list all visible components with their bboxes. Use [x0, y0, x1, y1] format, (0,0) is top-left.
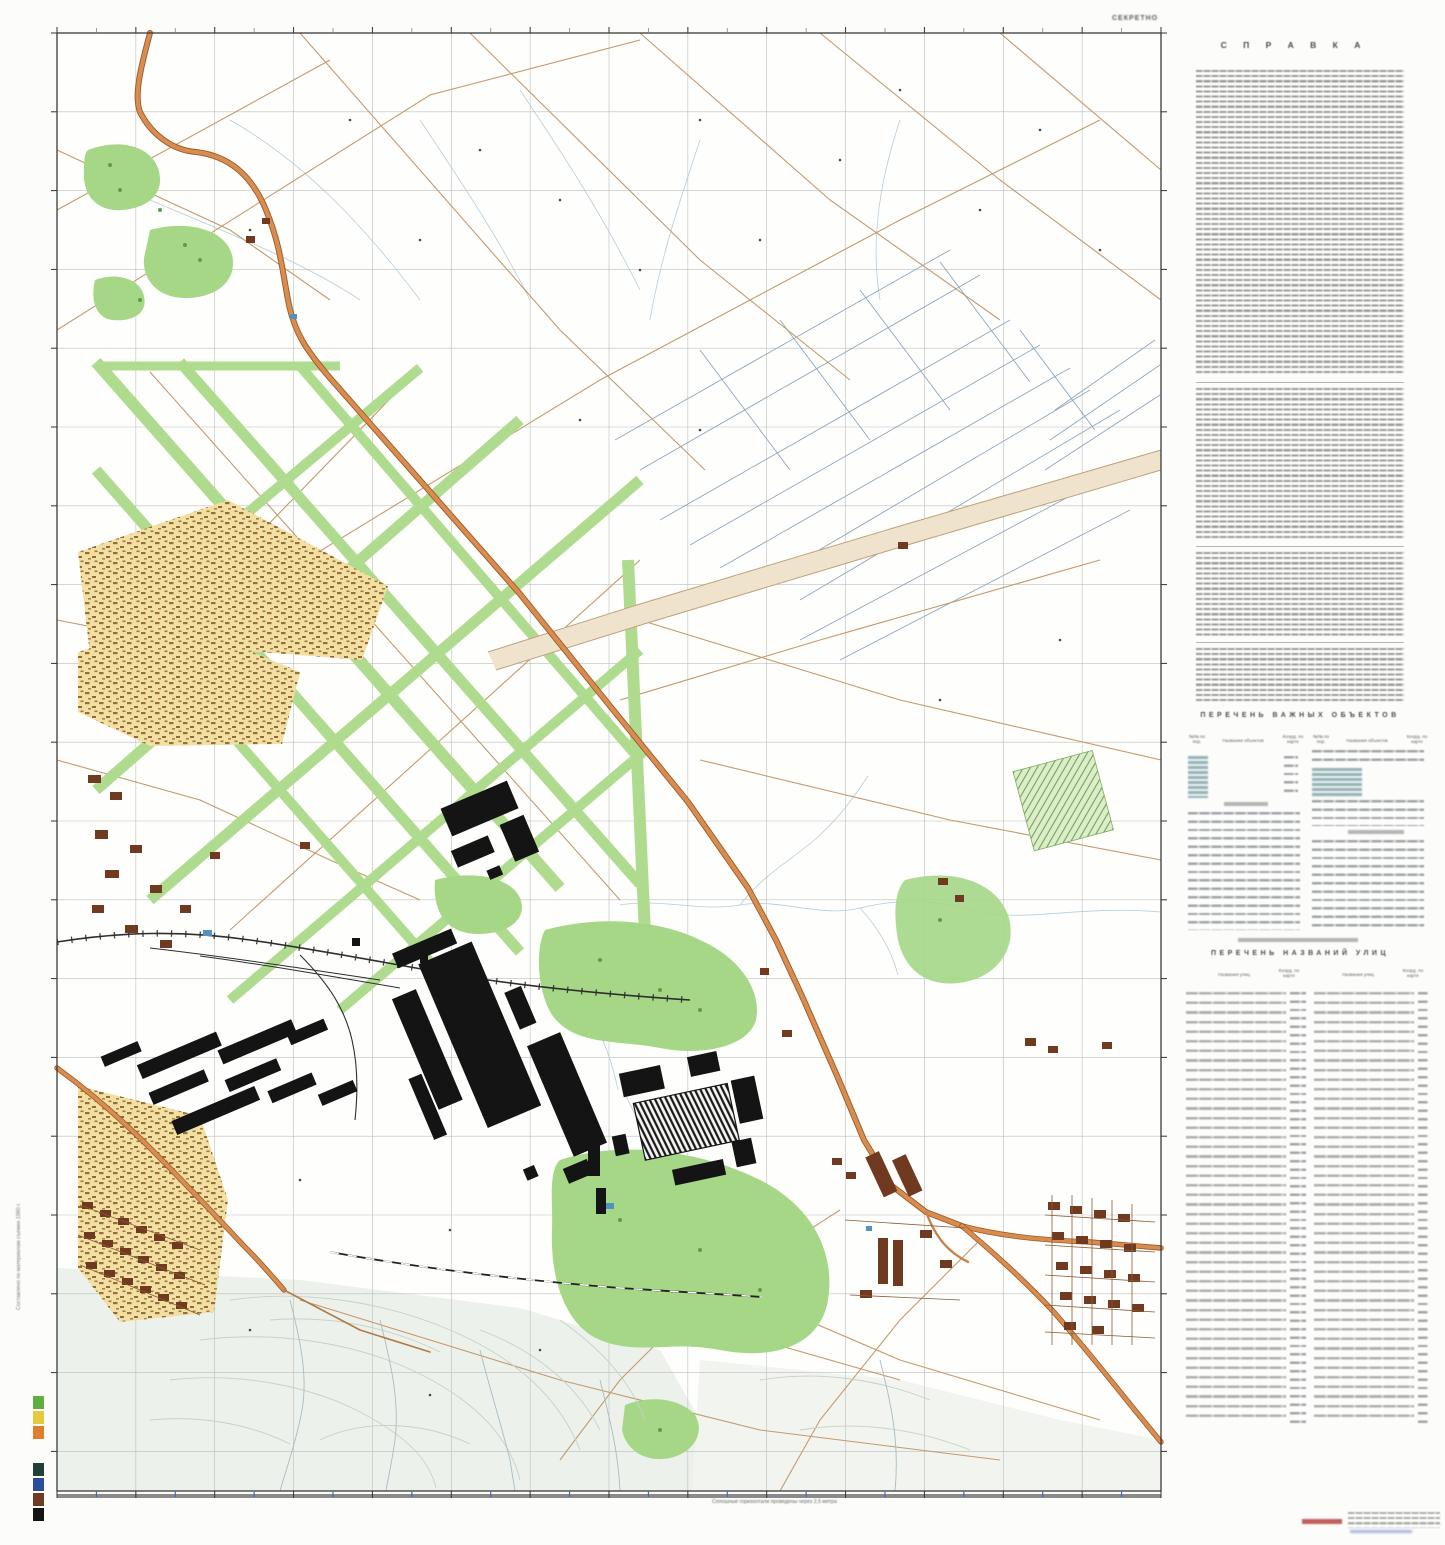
col-coord: Коорд. по карте — [1400, 968, 1426, 978]
imprint-text-block — [1348, 1512, 1440, 1528]
sidebar: С П Р А В К А ПЕРЕЧЕНЬ ВАЖНЫХ ОБЪЕКТОВ №… — [1180, 40, 1428, 50]
objects-subheading — [1348, 830, 1404, 834]
col-coord: Коорд. по карте — [1404, 734, 1430, 744]
color-swatch — [33, 1411, 44, 1424]
map-sheet-page: СЕКРЕТНО Составлено по материалам съемки… — [0, 0, 1445, 1545]
objects-rows — [1312, 800, 1424, 826]
color-swatch — [33, 1493, 44, 1506]
reference-text-block — [1196, 648, 1404, 704]
streets-rows — [1314, 992, 1414, 1424]
divider — [1196, 382, 1404, 383]
imprint-blue-mark — [1350, 1530, 1412, 1533]
reference-text-block — [1196, 388, 1404, 540]
imprint-red-stamp — [1302, 1519, 1342, 1524]
left-margin-note: Составлено по материалам съемки 1980 г. — [16, 1203, 22, 1310]
objects-rows — [1312, 840, 1424, 930]
streets-table-title: ПЕРЕЧЕНЬ НАЗВАНИЙ УЛИЦ — [1180, 950, 1420, 957]
objects-rows-highlight — [1312, 768, 1362, 798]
objects-rows — [1188, 812, 1300, 930]
col-num: №№ по пор. — [1312, 734, 1330, 744]
color-swatch — [33, 1396, 44, 1409]
color-swatch — [33, 1463, 44, 1476]
color-swatch — [33, 1426, 44, 1439]
continuation-note — [1238, 938, 1358, 942]
reference-title: С П Р А В К А — [1180, 40, 1408, 50]
streets-coords — [1290, 992, 1306, 1424]
objects-rows — [1312, 750, 1424, 766]
reference-text-block — [1196, 70, 1404, 376]
objects-rows-highlight — [1188, 756, 1208, 798]
color-swatch — [33, 1478, 44, 1491]
reference-text-block — [1196, 552, 1404, 636]
print-color-bar — [33, 1396, 44, 1523]
streets-coords — [1418, 992, 1428, 1424]
col-name: Названия улиц — [1194, 972, 1274, 977]
objects-table-title: ПЕРЕЧЕНЬ ВАЖНЫХ ОБЪЕКТОВ — [1180, 712, 1420, 719]
streets-rows — [1186, 992, 1286, 1424]
classification-label: СЕКРЕТНО — [1112, 15, 1158, 22]
contour-interval-note: Сплошные горизонтали проведены через 2,5… — [712, 1499, 837, 1505]
objects-coords — [1284, 756, 1298, 798]
divider — [1196, 642, 1404, 643]
col-coord: Коорд. по карте — [1276, 968, 1302, 978]
divider — [1196, 546, 1404, 547]
objects-subheading — [1224, 802, 1268, 806]
col-coord: Коорд. по карте — [1280, 734, 1306, 744]
col-name: Названия улиц — [1318, 972, 1398, 977]
col-name: Названия объектов — [1334, 738, 1400, 743]
col-name: Названия объектов — [1210, 738, 1276, 743]
col-num: №№ по пор. — [1188, 734, 1206, 744]
color-swatch — [33, 1508, 44, 1521]
